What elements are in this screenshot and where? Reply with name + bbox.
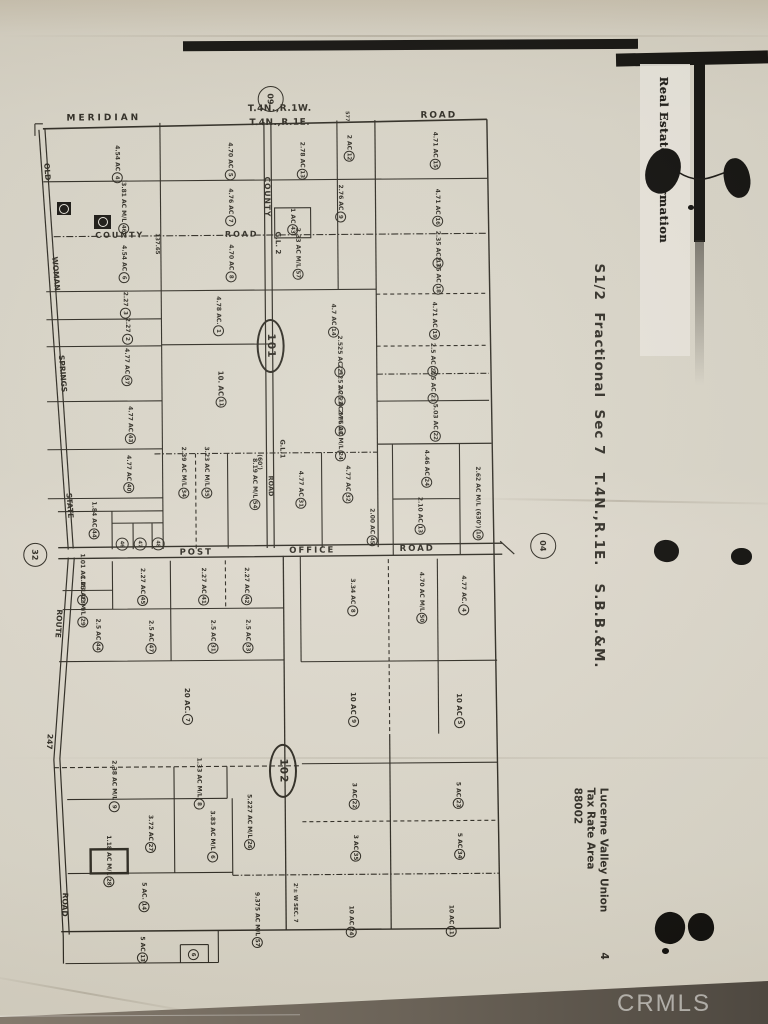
parcel-label: 4.54 AC6	[118, 245, 129, 283]
road-label-post-office-road: ROAD	[400, 544, 435, 554]
parcel-acreage: 2.27	[122, 292, 129, 307]
parcel-acreage: 2.76 AC M/L	[337, 409, 344, 449]
map-stamp-mark	[57, 202, 71, 215]
parcel-label: 10 AC11	[446, 905, 457, 937]
parcel-number: 15	[430, 159, 441, 170]
parcel-acreage: 2.33 AC M/L	[294, 228, 301, 268]
parcel-label: 4.46 AC24	[421, 450, 432, 488]
parcel-number: 34	[454, 849, 465, 860]
parcel-number: 10	[473, 529, 484, 540]
parcel-label: 5 AC13	[137, 936, 148, 963]
parcel-label: 10 AC24	[346, 906, 357, 938]
parcel-label: 4.70 AC8	[225, 244, 236, 282]
parcel-label: 5.227 AC M/L26	[244, 794, 255, 850]
parcel-acreage: 2.00 AC	[368, 508, 375, 534]
map-stamp-mark	[94, 215, 111, 229]
parcel-acreage: 3 AC	[351, 783, 358, 798]
parcel-label: 2.33 AC M/L57	[292, 228, 303, 280]
parcel-label: 3 AC22	[349, 783, 360, 810]
parcel-label: 1.23 AC M/L29	[77, 575, 88, 627]
parcel-acreage: 2.10 AC	[416, 497, 423, 523]
parcel-label: 2.5 AC44	[92, 618, 103, 652]
parcel-acreage: 5.227 AC M/L	[246, 794, 253, 838]
parcel-acreage: 10 AC	[348, 906, 355, 926]
parcel-number: 37	[121, 375, 132, 386]
parcel-label: 4.77 AC32	[342, 465, 353, 503]
parcel-number: 11	[216, 397, 227, 408]
parcel-label: 4.70 AC M/L50	[416, 572, 427, 624]
parcel-acreage: 2.5 AC	[209, 620, 216, 642]
parcel-label: 20 AC.7	[182, 688, 193, 725]
parcel-number: 5	[225, 169, 236, 180]
parcel-acreage: 2.62 AC M/L (630')	[474, 466, 481, 528]
parcel-number: 21	[428, 393, 439, 404]
parcel-number: 13	[415, 524, 426, 535]
parcel-acreage: 2.27	[124, 318, 131, 333]
parcel-label: 4.71 AC16	[432, 189, 443, 227]
parcel-number: 2	[122, 333, 133, 344]
parcel-acreage: 4.77 AC.	[460, 575, 467, 603]
parcel-acreage: 2.76 AC	[337, 184, 344, 210]
parcel-number: 44	[89, 528, 100, 539]
tax-area-line2: Tax Rate Area	[584, 788, 597, 913]
parcel-number: 44	[92, 641, 103, 652]
parcel-label: 2.273	[120, 292, 131, 319]
parcel-label: 3 AC35	[350, 835, 361, 862]
road-label-meridian: MERIDIAN	[66, 113, 141, 124]
parcel-number: 31	[207, 642, 218, 653]
parcel-acreage: 4.70 AC	[227, 244, 234, 270]
road-label-post: POST	[180, 547, 213, 557]
parcel-number: 6	[207, 851, 218, 862]
parcel-number: 57	[252, 937, 263, 948]
section-circle-48: 48	[152, 537, 165, 550]
parcel-number: 22	[349, 799, 360, 810]
parcel-label: 2.10 AC13	[414, 497, 425, 535]
dimension-label: 577	[344, 111, 350, 121]
road-label-gl1-road: ROAD	[267, 476, 275, 497]
ink-speck	[662, 948, 669, 954]
parcel-acreage: 5 AC.	[140, 882, 147, 900]
parcel-acreage: 20 AC.	[183, 688, 191, 713]
parcel-acreage: 4.71 AC	[431, 302, 438, 328]
parcel-number: 46	[118, 223, 129, 234]
photographed-plat-document: MERIDIANT.4N.,R.1W.T.4N.,R.1E.ROADCOUNTY…	[0, 0, 768, 1024]
parcel-label: 5 AC34	[454, 833, 465, 860]
parcel-number: 8	[194, 799, 205, 810]
parcel-acreage: 2.525 AC	[336, 335, 343, 365]
parcel-number: 24	[346, 926, 357, 937]
parcel-label: 2.35 AC18	[432, 257, 443, 295]
parcel-label: 2.5 AC47	[145, 620, 156, 654]
parcel-number: 57	[293, 269, 304, 280]
parcel-label: 4.71 AC15	[429, 132, 440, 170]
tax-rate-area-block: Lucerne Valley Union Tax Rate Area 88002	[571, 788, 610, 913]
parcel-label: 2.5 AC21	[427, 370, 438, 404]
parcel-label: 2.272	[122, 318, 133, 345]
road-label-county-road: ROAD	[225, 230, 259, 239]
parcel-acreage: 5 AC	[139, 936, 146, 951]
parcel-label: 9.375 AC M/L57	[251, 892, 262, 948]
parcel-acreage: 4.70 AC	[227, 142, 234, 168]
parcel-label: 2 AC12	[343, 135, 354, 162]
parcel-acreage: 2.5 AC	[147, 620, 154, 642]
parcel-label: 10. AC11	[215, 371, 226, 408]
parcel-number: 47	[145, 643, 156, 654]
parcel-number: 45	[367, 535, 378, 546]
parcel-acreage: 1.33 AC M/L	[195, 758, 202, 798]
parcel-label: 4.71 AC19	[429, 302, 440, 340]
parcel-number: 40	[123, 482, 134, 493]
parcel-label: 2.39 AC M/L34	[178, 447, 189, 499]
parcel-acreage: 2 AC	[345, 135, 352, 150]
parcel-number: 13	[137, 953, 148, 964]
parcel-acreage: 10. AC	[217, 371, 225, 396]
parcel-number: 12	[344, 151, 355, 162]
road-label-left-road: ROAD	[60, 893, 70, 917]
parcel-label: 1.33 AC M/L8	[193, 758, 204, 810]
parcel-acreage: 3.83 AC M/L	[209, 810, 216, 850]
route-shield-number: 102	[277, 758, 289, 783]
parcel-number: 45	[137, 595, 148, 606]
tax-area-line3: 88002	[571, 788, 584, 913]
parcel-number: 7	[182, 714, 193, 725]
parcel-acreage: 3.23 AC M/L	[203, 446, 210, 486]
parcel-acreage: 2.27 AC	[139, 568, 146, 594]
road-label-office: OFFICE	[289, 545, 335, 555]
parcel-acreage: 2.5 AC	[429, 343, 436, 365]
parcel-acreage: 10 AC	[455, 693, 463, 716]
parcel-number: 23	[453, 798, 464, 809]
parcel-acreage: 3.72 AC	[147, 815, 154, 841]
parcel-label: 10 AC5	[454, 693, 465, 728]
road-label-top: ROAD	[420, 111, 457, 121]
parcel-number: 35	[350, 851, 361, 862]
parcel-acreage: 4.76 AC	[227, 188, 234, 214]
parcel-number: 19	[429, 329, 440, 340]
parcel-acreage: 2.5 AC	[429, 370, 436, 392]
route-shield-102: 102	[269, 744, 297, 798]
parcel-number: 13	[297, 169, 308, 180]
section-circle-47: 47	[134, 537, 147, 550]
parcel-number: 35	[201, 487, 212, 498]
road-label-gl1: G.L.1	[278, 439, 286, 458]
parcel-acreage: 2.38 AC M/L	[110, 760, 117, 800]
page-number: 4	[598, 952, 610, 959]
parcel-label: 2.27 AC42	[241, 567, 252, 605]
parcel-label: 4.77 AC37	[121, 348, 132, 386]
parcel-acreage: 4.71 AC	[431, 132, 438, 158]
parcel-acreage: 4.77 AC	[344, 465, 351, 491]
parcel-label: 10 AC9	[348, 692, 359, 727]
parcel-label: 4.77 AC.4	[458, 575, 469, 615]
parcel-number: 50	[416, 613, 427, 624]
township-label-south: T.4N.,R.1E.	[250, 118, 311, 128]
parcel-label: 3.23 AC M/L35	[201, 446, 212, 498]
section-circle-32: 32	[23, 543, 47, 567]
parcel-number: 41	[198, 594, 209, 605]
parcel-acreage: 2.35 AC	[434, 231, 441, 257]
parcel-number: 9	[348, 716, 359, 727]
parcel-label: 3.81 AC M/L46	[118, 182, 129, 234]
parcel-label: 2.5 AC31	[207, 620, 218, 654]
parcel-label: 2.76 AC9	[335, 184, 346, 222]
parcel-label: 6	[188, 949, 199, 960]
parcel-acreage: 2.35 AC	[434, 257, 441, 283]
parcel-number: 11	[446, 925, 457, 936]
tax-area-line1: Lucerne Valley Union	[597, 788, 610, 913]
parcel-number: 29	[77, 616, 88, 627]
parcel-number: 9	[335, 211, 346, 222]
crmls-watermark: CRMLS	[617, 990, 711, 1018]
route-shield-number: 101	[265, 333, 277, 358]
lot-label-gl2: G.L. 2	[274, 231, 282, 254]
parcel-label: 2.00 AC45	[366, 508, 377, 546]
parcel-acreage: 2.27 AC	[243, 567, 250, 593]
parcel-label: 4.70 AC5	[225, 142, 236, 180]
parcel-number: 5	[454, 717, 465, 728]
parcel-label: 4.77 AC40	[123, 455, 134, 493]
parcel-number: 31	[295, 498, 306, 509]
parcel-number: 6	[188, 949, 199, 960]
route-shield-101: 101	[256, 319, 284, 373]
parcel-acreage: 5 AC	[456, 833, 463, 848]
parcel-acreage: 3 AC	[352, 835, 359, 850]
parcel-label: 3.72 AC27	[145, 815, 156, 853]
parcel-acreage: 4.77 AC	[127, 406, 134, 432]
parcel-acreage: 2.78 AC	[299, 142, 306, 168]
parcel-label: 2.62 AC M/L (630')10	[472, 466, 484, 540]
road-label-old: OLD	[42, 163, 52, 181]
parcel-acreage: 2.5 AC	[94, 618, 101, 640]
road-label-247: 247	[45, 734, 55, 750]
parcel-acreage: 4.77 AC	[125, 455, 132, 481]
road-label-county-vert: COUNTY	[263, 177, 272, 218]
section-circle-46: 46	[116, 538, 129, 551]
parcel-acreage: 3.81 AC M/L	[120, 182, 127, 222]
parcel-label: 2.5 AC33	[242, 619, 253, 653]
parcel-number: 9	[109, 801, 120, 812]
ink-speck	[688, 205, 694, 210]
parcel-label: 2.27 AC45	[137, 568, 148, 606]
section-title: S1/2 Fractional Sec 7 T.4N.,R.1E. S.B.B.…	[591, 263, 607, 668]
punch-hole-mark	[731, 548, 752, 565]
parcel-number: 14	[138, 901, 149, 912]
parcel-acreage: 10 AC	[349, 692, 357, 715]
parcel-acreage: 1.23 AC M/L	[79, 575, 86, 615]
parcel-acreage: 5.03 AC	[432, 404, 439, 430]
parcel-label: 5 AC23	[453, 782, 464, 809]
parcel-label: 3.34 AC8	[347, 578, 358, 616]
parcel-label: 4.7 AC14	[328, 304, 339, 338]
parcel-label: 4.77 AC31	[295, 471, 306, 509]
parcel-number: 18	[433, 284, 444, 295]
parcel-acreage: 4.77 AC	[297, 471, 304, 497]
parcel-acreage: 2.5 AC	[244, 619, 251, 641]
parcel-acreage: 2.39 AC M/L	[180, 447, 187, 487]
parcel-label: 2.38 AC M/L9	[108, 760, 119, 812]
parcel-label: 4.78 AC.1	[213, 296, 224, 336]
parcel-label: 4.77 AC43	[125, 406, 136, 444]
parcel-acreage: 10 AC	[448, 905, 455, 925]
parcel-number: 26	[244, 839, 255, 850]
parcel-acreage: 3.34 AC	[349, 578, 356, 604]
parcel-acreage: 5 AC	[455, 782, 462, 797]
parcel-label: 2.78 AC13	[297, 142, 308, 180]
section-circle-04: 04	[530, 533, 556, 559]
parcel-number: 42	[241, 594, 252, 605]
parcel-number: 24	[335, 450, 346, 461]
parcel-label: 2.27 AC41	[198, 568, 209, 606]
section-line-note: 2'± W SEC. 7	[292, 883, 298, 923]
parcel-acreage: 4.77 AC	[123, 348, 130, 374]
parcel-label: 4.54 AC4	[112, 145, 123, 183]
parcel-number: 32	[342, 492, 353, 503]
parcel-acreage: 2.27 AC	[200, 568, 207, 594]
road-label-state: STATE	[64, 493, 75, 519]
parcel-number: 7	[225, 215, 236, 226]
parcel-acreage: 4.7 AC	[330, 304, 337, 326]
parcel-acreage: 4.78 AC.	[215, 296, 222, 324]
parcel-number: 24	[421, 477, 432, 488]
parcel-acreage: 8.19 AC M/L	[251, 458, 258, 498]
parcel-acreage: 4.71 AC	[434, 189, 441, 215]
parcel-number: 33	[242, 642, 253, 653]
parcel-number: 27	[145, 842, 156, 853]
parcel-number: 6	[119, 272, 130, 283]
parcel-label: 3.83 AC M/L6	[207, 810, 218, 862]
parcel-number: 43	[125, 433, 136, 444]
parcel-acreage: 1.84 AC	[90, 501, 97, 527]
parcel-number: 8	[347, 605, 358, 616]
parcel-acreage: 4.54 AC	[114, 145, 121, 171]
parcel-label: 1.18 AC M/L28	[103, 835, 114, 887]
parcel-number: 4	[458, 605, 469, 616]
parcel-number: 54	[249, 499, 260, 510]
parcel-acreage: 1.18 AC M/L	[105, 835, 112, 875]
parcel-number: 8	[226, 271, 237, 282]
parcel-acreage: 4.54 AC	[120, 245, 127, 271]
parcel-label: 4.76 AC7	[225, 188, 236, 226]
parcel-number: 22	[430, 431, 441, 442]
dimension-label: 137.65	[154, 233, 160, 254]
parcel-number: 16	[432, 216, 443, 227]
parcel-acreage: 4.46 AC	[423, 450, 430, 476]
parcel-number: 28	[103, 876, 114, 887]
parcel-number: 34	[178, 488, 189, 499]
road-label-route: ROUTE	[53, 609, 64, 638]
parcel-label: 1.84 AC44	[88, 501, 99, 539]
parcel-acreage: 1 AC	[289, 208, 296, 223]
parcel-acreage: 9.375 AC M/L	[253, 892, 260, 936]
section-circle-09: 09	[258, 86, 284, 112]
parcel-number: 1	[213, 325, 224, 336]
parcel-acreage: 4.70 AC M/L	[418, 572, 425, 612]
parcel-label: 8.19 AC M/L54	[249, 458, 260, 510]
parcel-label: 5.03 AC22	[430, 404, 441, 442]
parcel-label: 2.76 AC M/L24	[335, 409, 346, 461]
parcel-label: 5 AC.14	[138, 882, 149, 912]
